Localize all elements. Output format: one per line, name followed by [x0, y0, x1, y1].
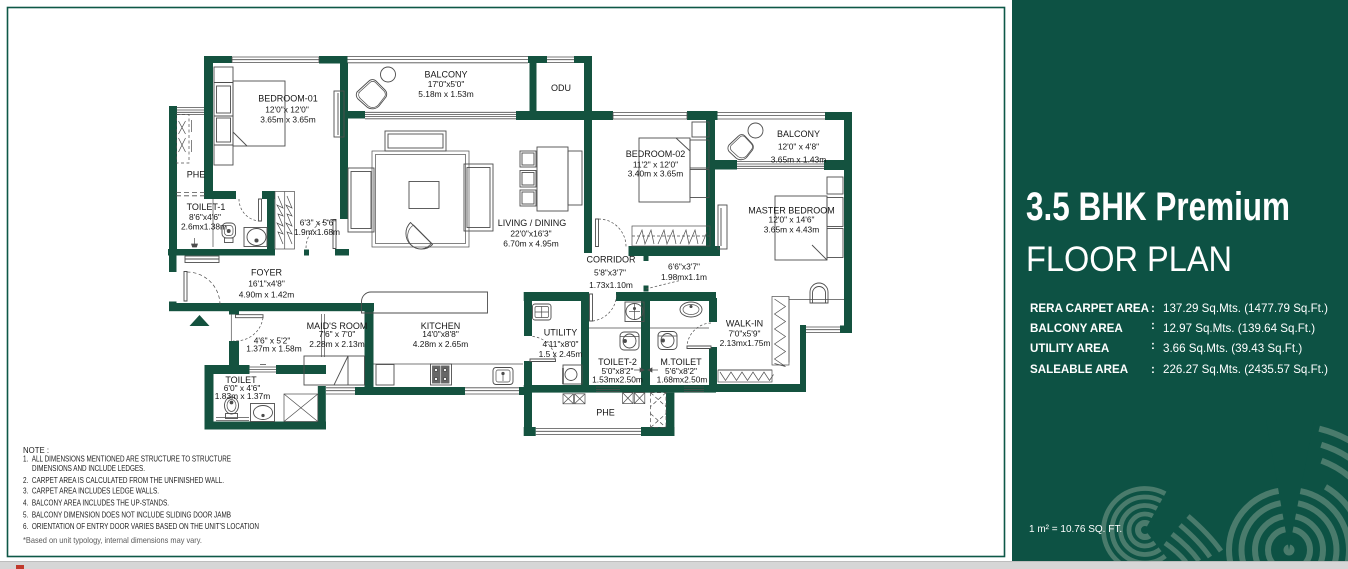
svg-text:4.28m x 2.65m: 4.28m x 2.65m	[413, 339, 468, 349]
svg-text:DIMENSIONS AND INCLUDE LEDGES.: DIMENSIONS AND INCLUDE LEDGES.	[32, 464, 145, 473]
svg-text:12.97 Sq.Mts. (139.64 Sq.Ft.): 12.97 Sq.Mts. (139.64 Sq.Ft.)	[1163, 322, 1315, 335]
svg-text:5'8"x3'7": 5'8"x3'7"	[594, 268, 626, 278]
svg-text:1.9mx1.68m: 1.9mx1.68m	[294, 227, 340, 237]
svg-text:LIVING / DINING: LIVING / DINING	[498, 218, 567, 228]
svg-text:12'0" x 4'8": 12'0" x 4'8"	[778, 142, 819, 152]
svg-text:BALCONY AREA: BALCONY AREA	[1030, 322, 1123, 335]
svg-text:TOILET-1: TOILET-1	[187, 202, 226, 212]
svg-text:RERA CARPET AREA: RERA CARPET AREA	[1030, 302, 1150, 315]
svg-text:14'0"x8'8": 14'0"x8'8"	[422, 329, 459, 339]
svg-text:PHE: PHE	[187, 170, 206, 180]
svg-text:12'0"x 12'0": 12'0"x 12'0"	[265, 105, 309, 115]
svg-text:3. CARPET AREA INCLUDES LEDGE: 3. CARPET AREA INCLUDES LEDGE WALLS.	[23, 487, 159, 496]
svg-text:2.6mx1.38m: 2.6mx1.38m	[181, 222, 227, 232]
svg-text:6'3" x 5'6": 6'3" x 5'6"	[300, 218, 337, 228]
svg-text:7'0"x5'9": 7'0"x5'9"	[729, 329, 761, 339]
svg-text:1.53mx2.50m: 1.53mx2.50m	[592, 375, 643, 385]
svg-text:4.90m x 1.42m: 4.90m x 1.42m	[239, 290, 294, 300]
svg-text:1.37m x 1.58m: 1.37m x 1.58m	[246, 344, 301, 354]
svg-text:3.65m x 1.43m: 3.65m x 1.43m	[771, 155, 826, 165]
svg-text:16'1"x4'8": 16'1"x4'8"	[248, 279, 285, 289]
svg-text:226.27 Sq.Mts. (2435.57 Sq.Ft.: 226.27 Sq.Mts. (2435.57 Sq.Ft.)	[1163, 363, 1328, 376]
svg-text:2.28m x 2.13m: 2.28m x 2.13m	[309, 339, 364, 349]
svg-text:5.18m x 1.53m: 5.18m x 1.53m	[418, 89, 473, 99]
svg-text::: :	[1151, 339, 1155, 352]
svg-text:7'6" x 7'0": 7'6" x 7'0"	[319, 329, 356, 339]
svg-text:SALEABLE AREA: SALEABLE AREA	[1030, 363, 1129, 376]
svg-text:12'0" x 14'6": 12'0" x 14'6"	[769, 215, 815, 225]
svg-text:1.73x1.10m: 1.73x1.10m	[589, 280, 633, 290]
svg-text::: :	[1151, 319, 1155, 332]
svg-text:1. ALL DIMENSIONS MENTIONED A: 1. ALL DIMENSIONS MENTIONED ARE STRUCTUR…	[23, 455, 231, 464]
svg-text:1 m² = 10.76 SQ. FT.: 1 m² = 10.76 SQ. FT.	[1029, 524, 1122, 535]
svg-text:*Based on unit typology, inter: *Based on unit typology, internal dimens…	[23, 536, 202, 545]
svg-text:WALK-IN: WALK-IN	[726, 319, 763, 329]
svg-text:6'6"x3'7": 6'6"x3'7"	[668, 262, 700, 272]
svg-text:PHE: PHE	[596, 408, 615, 418]
svg-text:3.65m x 4.43m: 3.65m x 4.43m	[764, 225, 819, 235]
svg-text:UTILITY: UTILITY	[544, 328, 578, 338]
svg-text::: :	[1151, 363, 1155, 376]
svg-text:1.5 x 2.45m: 1.5 x 2.45m	[539, 349, 583, 359]
svg-text:BALCONY: BALCONY	[777, 129, 820, 139]
svg-text:137.29 Sq.Mts. (1477.79 Sq.Ft.: 137.29 Sq.Mts. (1477.79 Sq.Ft.)	[1163, 302, 1328, 315]
svg-text:1.83m x 1.37m: 1.83m x 1.37m	[215, 391, 270, 401]
svg-text:BEDROOM-01: BEDROOM-01	[258, 94, 318, 104]
svg-text:2.13mx1.75m: 2.13mx1.75m	[720, 338, 771, 348]
svg-text:8'6"x4'6": 8'6"x4'6"	[189, 212, 221, 222]
svg-text:4'11"x8'0": 4'11"x8'0"	[543, 339, 579, 349]
svg-text:CORRIDOR: CORRIDOR	[587, 255, 636, 265]
svg-text:5. BALCONY DIMENSION DOES NOT: 5. BALCONY DIMENSION DOES NOT INCLUDE SL…	[23, 511, 231, 520]
svg-text:22'0"x16'3": 22'0"x16'3"	[510, 229, 551, 239]
svg-text:BEDROOM-02: BEDROOM-02	[626, 149, 686, 159]
svg-text:3.65m x 3.65m: 3.65m x 3.65m	[260, 115, 315, 125]
svg-text:UTILITY AREA: UTILITY AREA	[1030, 342, 1110, 355]
svg-text:FLOOR PLAN: FLOOR PLAN	[1026, 240, 1232, 279]
svg-text:ODU: ODU	[551, 83, 571, 93]
svg-text:4. BALCONY AREA INCLUDES THE: 4. BALCONY AREA INCLUDES THE UP-STANDS.	[23, 499, 169, 508]
svg-text:BALCONY: BALCONY	[424, 70, 467, 80]
svg-text:3.66 Sq.Mts. (39.43 Sq.Ft.): 3.66 Sq.Mts. (39.43 Sq.Ft.)	[1163, 342, 1302, 355]
svg-text:2. CARPET AREA IS CALCULATED: 2. CARPET AREA IS CALCULATED FROM THE UN…	[23, 476, 224, 485]
svg-text:3.5 BHK Premium: 3.5 BHK Premium	[1026, 185, 1290, 229]
svg-text:1.98mx1.1m: 1.98mx1.1m	[661, 272, 707, 282]
svg-text:6.70m x 4.95m: 6.70m x 4.95m	[503, 239, 558, 249]
svg-text:FOYER: FOYER	[251, 268, 283, 278]
svg-text:3.40m x 3.65m: 3.40m x 3.65m	[628, 169, 683, 179]
svg-text:6. ORIENTATION OF ENTRY DOOR: 6. ORIENTATION OF ENTRY DOOR VARIES BASE…	[23, 522, 259, 531]
svg-text::: :	[1151, 302, 1155, 315]
svg-text:1.68mx2.50m: 1.68mx2.50m	[657, 375, 708, 385]
svg-text:17'0"x5'0": 17'0"x5'0"	[428, 79, 465, 89]
